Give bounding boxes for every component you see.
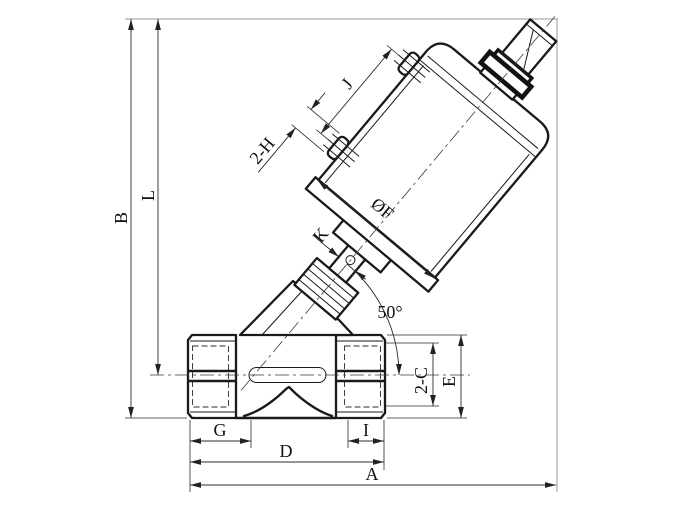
dim-d-label: D — [280, 441, 293, 461]
dim-k-label: K — [309, 224, 333, 247]
dim-b-label: B — [111, 212, 131, 224]
dim-l-label: L — [138, 190, 158, 201]
dim-i-label: I — [363, 420, 369, 440]
technical-drawing: J 2-H K ØF 50° B L 2-C — [0, 0, 693, 508]
dim-j-label: J — [337, 75, 357, 93]
dim-h-label: 2-H — [245, 134, 278, 168]
dim-h-line-right — [311, 93, 325, 110]
dim-a-label: A — [366, 464, 379, 484]
bottom-dimensions: G I D A — [190, 420, 556, 492]
valve-body — [188, 281, 385, 418]
body-saddle-curve — [244, 387, 332, 416]
angle-label: 50° — [377, 302, 402, 322]
drawing-canvas: J 2-H K ØF 50° B L 2-C — [0, 0, 693, 508]
dim-c-label: 2-C — [411, 367, 431, 394]
dim-g-label: G — [214, 420, 227, 440]
dim-e-label: E — [439, 376, 459, 387]
dim-k-line-lower — [356, 271, 366, 279]
left-dimensions: B L — [111, 19, 187, 418]
right-dimensions: 2-C E — [385, 335, 467, 418]
right-port-boss — [336, 335, 385, 418]
